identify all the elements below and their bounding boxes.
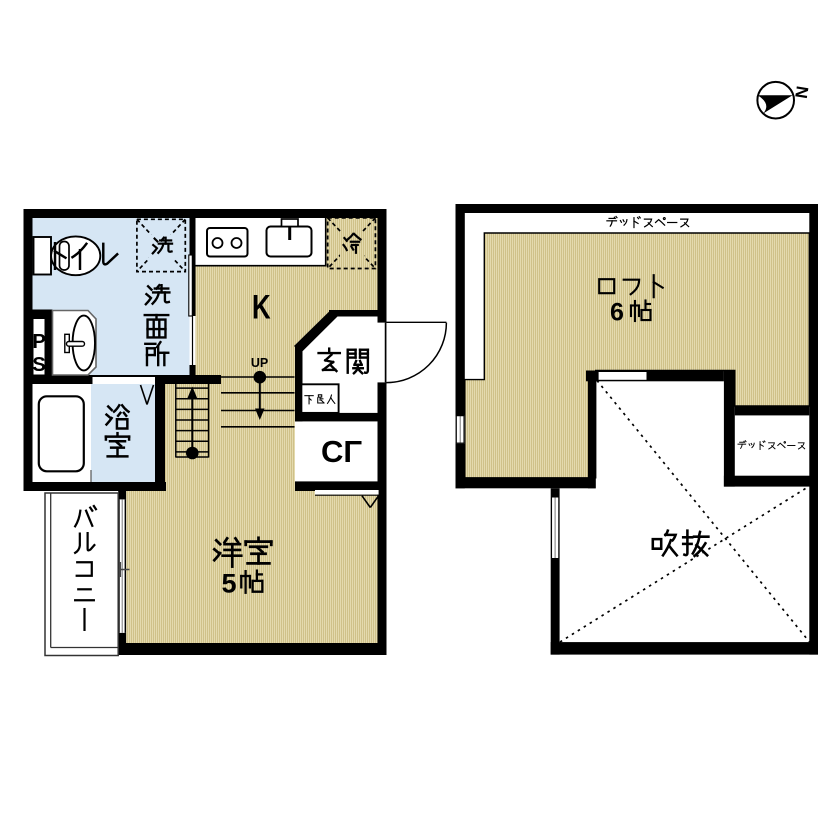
svg-text:CΓ: CΓ <box>321 434 362 469</box>
svg-text:K: K <box>252 289 271 326</box>
svg-text:6: 6 <box>610 299 624 327</box>
svg-text:P: P <box>32 331 45 353</box>
svg-text:5: 5 <box>221 569 236 599</box>
svg-text:S: S <box>32 354 45 376</box>
svg-text:UP: UP <box>251 356 268 370</box>
